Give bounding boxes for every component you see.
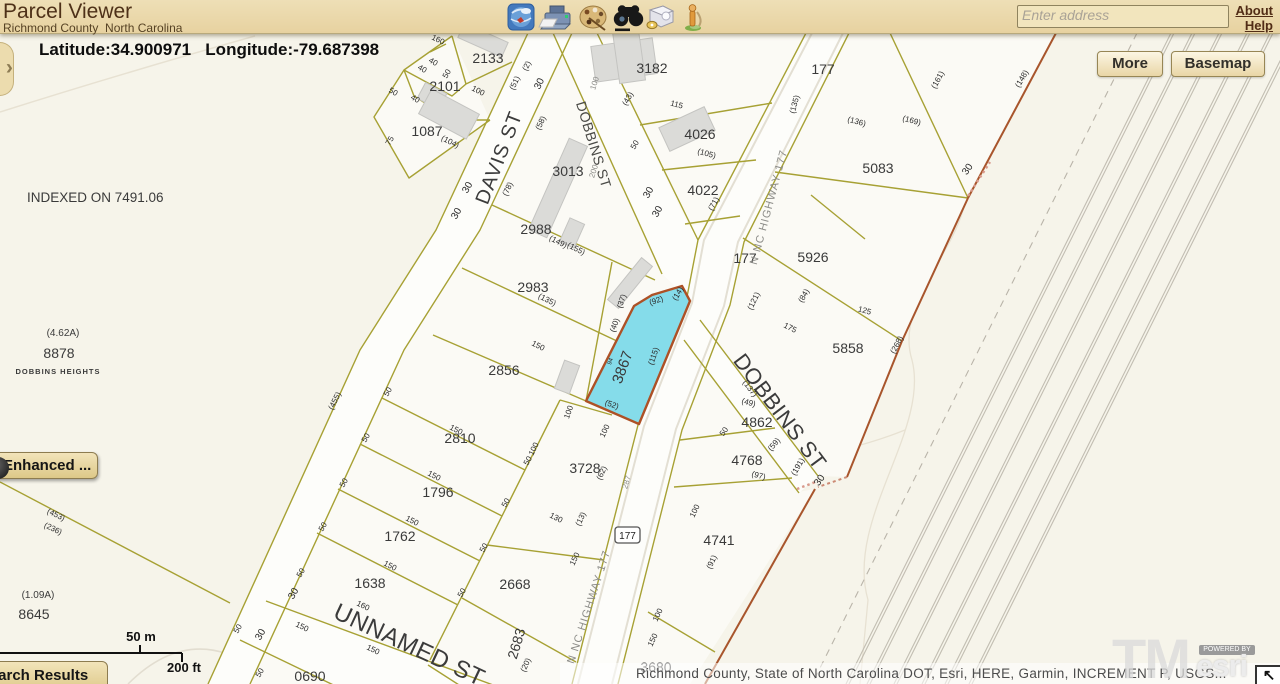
svg-text:8645: 8645 [18, 606, 49, 622]
svg-text:4026: 4026 [684, 126, 715, 142]
svg-text:2988: 2988 [520, 221, 551, 237]
svg-text:4768: 4768 [731, 452, 762, 468]
svg-text:1638: 1638 [354, 575, 385, 591]
svg-text:5083: 5083 [862, 160, 893, 176]
svg-text:2668: 2668 [499, 576, 530, 592]
svg-text:INDEXED ON 7491.06: INDEXED ON 7491.06 [27, 190, 164, 205]
svg-text:0690: 0690 [294, 668, 325, 684]
svg-text:4741: 4741 [703, 532, 734, 548]
svg-text:2856: 2856 [488, 362, 519, 378]
svg-text:8878: 8878 [43, 345, 74, 361]
svg-text:1762: 1762 [384, 528, 415, 544]
svg-text:5858: 5858 [832, 340, 863, 356]
svg-text:2133: 2133 [472, 50, 503, 66]
svg-text:DOBBINS HEIGHTS: DOBBINS HEIGHTS [15, 367, 100, 376]
svg-text:177: 177 [619, 531, 636, 542]
svg-text:1796: 1796 [422, 484, 453, 500]
svg-text:50 m: 50 m [126, 629, 156, 644]
svg-text:1087: 1087 [411, 123, 442, 139]
svg-text:4022: 4022 [687, 182, 718, 198]
svg-text:3182: 3182 [636, 60, 667, 76]
svg-text:177: 177 [811, 61, 835, 77]
svg-text:2101: 2101 [429, 78, 460, 94]
svg-text:(1.09A): (1.09A) [22, 590, 55, 601]
svg-text:(4.62A): (4.62A) [47, 328, 80, 339]
svg-text:5926: 5926 [797, 249, 828, 265]
svg-text:200 ft: 200 ft [167, 660, 202, 675]
svg-text:3013: 3013 [552, 163, 583, 179]
